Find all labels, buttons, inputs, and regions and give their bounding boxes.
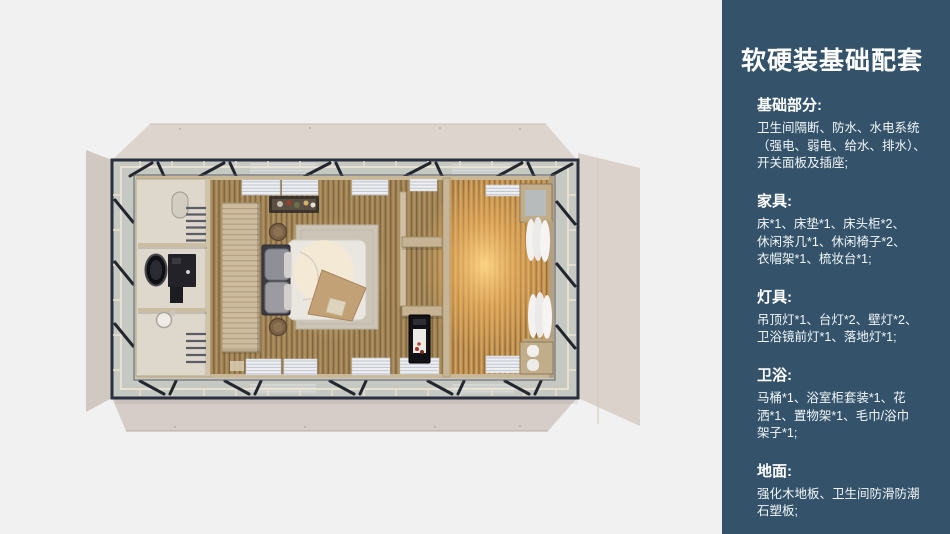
section-heading: 地面: bbox=[757, 460, 938, 481]
partition-wall bbox=[443, 178, 450, 377]
section-heading: 卫浴: bbox=[757, 364, 938, 385]
hanging-shelf bbox=[269, 196, 319, 213]
section-line: 架子*1; bbox=[757, 425, 938, 443]
door-mat bbox=[230, 361, 244, 371]
section-line: 衣帽架*1、梳妆台*1; bbox=[757, 251, 938, 269]
rolled-towel bbox=[527, 359, 539, 371]
section-line: 强化木地板、卫生间防滑防潮 bbox=[757, 486, 938, 504]
section-line: 卫生间隔断、防水、水电系统 bbox=[757, 120, 938, 138]
wardrobe bbox=[222, 203, 260, 354]
roof-panel-left bbox=[86, 150, 112, 412]
sidebar-section-flooring: 地面: 强化木地板、卫生间防滑防潮 石塑板; bbox=[757, 460, 938, 521]
section-line: 洒*1、置物架*1、毛巾/浴巾 bbox=[757, 408, 938, 426]
sidebar: 软硬装基础配套 基础部分: 卫生间隔断、防水、水电系统 （强电、弱电、给水、排水… bbox=[722, 0, 950, 534]
section-line: 吊顶灯*1、台灯*2、壁灯*2、 bbox=[757, 312, 938, 330]
sidebar-section-furniture: 家具: 床*1、床垫*1、床头柜*2、 休闲茶几*1、休闲椅子*2、 衣帽架*1… bbox=[757, 190, 938, 269]
bathroom bbox=[136, 179, 210, 376]
section-heading: 灯具: bbox=[757, 286, 938, 307]
door-panel-right bbox=[578, 153, 640, 426]
vanity-mirror-glass bbox=[150, 260, 162, 280]
sidebar-section-basics: 基础部分: 卫生间隔断、防水、水电系统 （强电、弱电、给水、排水）、 开关面板及… bbox=[757, 94, 938, 173]
nightstand-top bbox=[270, 224, 287, 241]
bench-top bbox=[520, 184, 552, 222]
section-line: 床*1、床垫*1、床头柜*2、 bbox=[757, 216, 938, 234]
nightstand-bottom bbox=[270, 319, 287, 336]
minibar-cabinet bbox=[409, 315, 430, 363]
section-line: 开关面板及插座; bbox=[757, 155, 938, 173]
roof-panel-top bbox=[112, 124, 577, 160]
shower-tray bbox=[172, 192, 188, 218]
double-bed bbox=[262, 240, 366, 321]
sidebar-section-bathroom: 卫浴: 马桶*1、浴室柜套装*1、花 洒*1、置物架*1、毛巾/浴巾 架子*1; bbox=[757, 364, 938, 443]
section-line: 休闲茶几*1、休闲椅子*2、 bbox=[757, 234, 938, 252]
sidebar-section-lighting: 灯具: 吊顶灯*1、台灯*2、壁灯*2、 卫浴镜前灯*1、落地灯*1; bbox=[757, 286, 938, 347]
section-heading: 家具: bbox=[757, 190, 938, 211]
slide: 软硬装基础配套 基础部分: 卫生间隔断、防水、水电系统 （强电、弱电、给水、排水… bbox=[0, 0, 950, 534]
section-line: 马桶*1、浴室柜套装*1、花 bbox=[757, 390, 938, 408]
bench-bottom bbox=[520, 342, 553, 374]
sidebar-title: 软硬装基础配套 bbox=[722, 0, 950, 77]
cabin-shadow bbox=[115, 399, 578, 404]
section-heading: 基础部分: bbox=[757, 94, 938, 115]
section-line: （强电、弱电、给水、排水）、 bbox=[757, 138, 938, 156]
floorplan-render bbox=[0, 0, 722, 534]
floorplan-svg bbox=[0, 0, 722, 534]
section-line: 卫浴镜前灯*1、落地灯*1; bbox=[757, 329, 938, 347]
rolled-towel bbox=[527, 345, 539, 357]
section-line: 石塑板; bbox=[757, 503, 938, 521]
curtain-top bbox=[524, 217, 552, 262]
